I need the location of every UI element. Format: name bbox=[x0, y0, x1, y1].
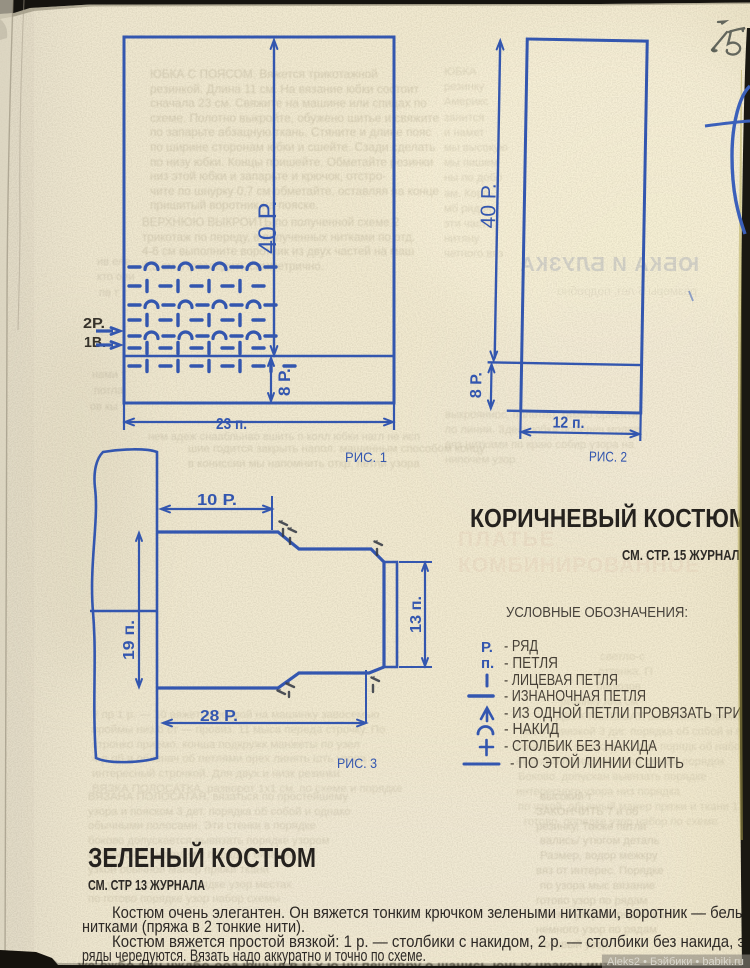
svg-text:Aleks2 • Бэйбики • babiki.ru: Aleks2 • Бэйбики • babiki.ru bbox=[607, 956, 744, 968]
